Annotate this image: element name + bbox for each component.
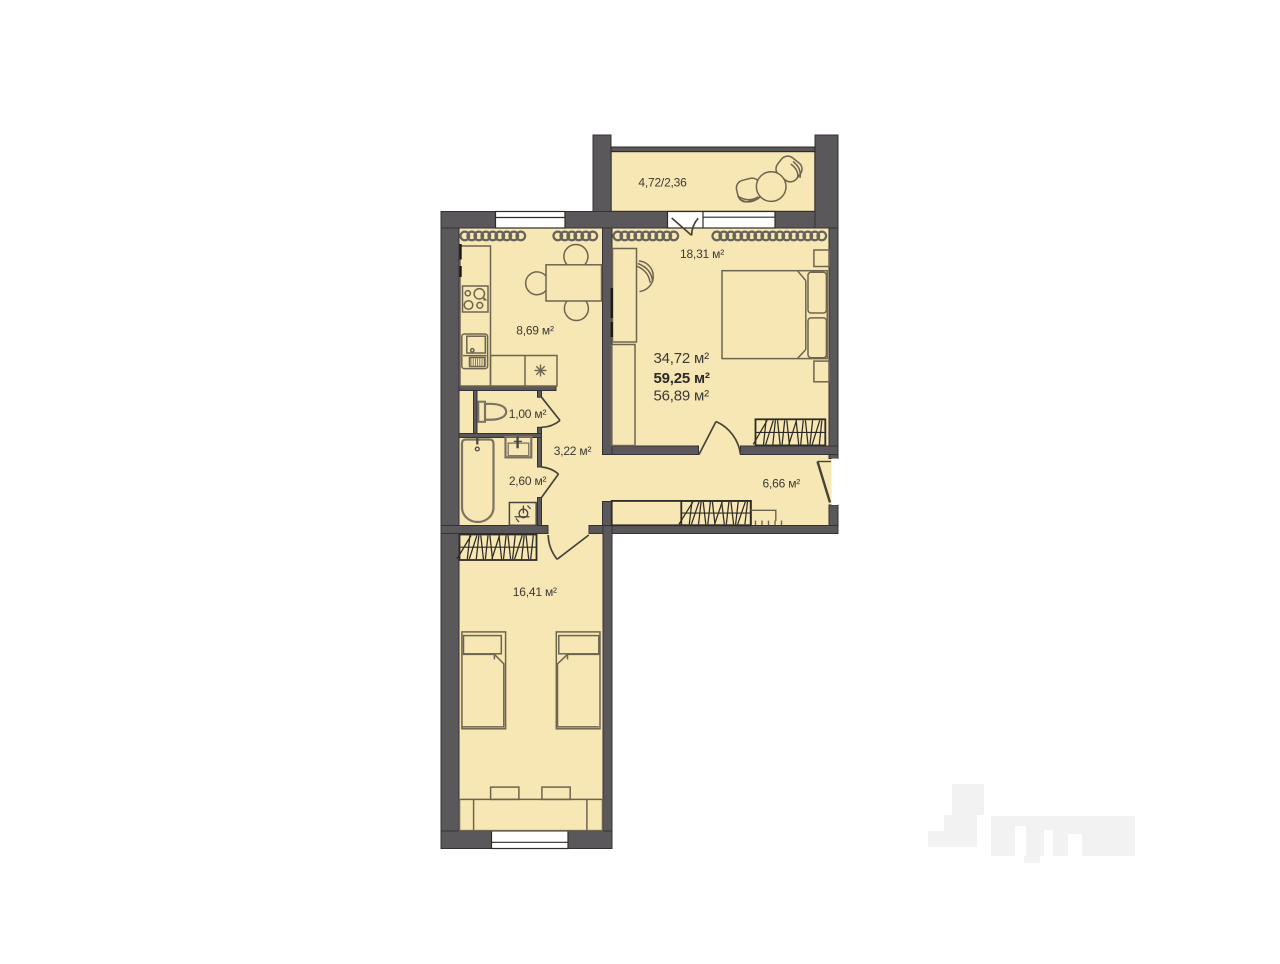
svg-text:56,89 м²: 56,89 м² [654,387,710,404]
svg-text:18,31 м²: 18,31 м² [680,247,724,261]
svg-text:8,69 м²: 8,69 м² [516,324,554,338]
svg-text:3,22 м²: 3,22 м² [554,444,592,458]
svg-text:34,72 м²: 34,72 м² [654,350,710,367]
svg-text:6,66 м²: 6,66 м² [763,476,801,490]
svg-text:4,72/2,36: 4,72/2,36 [638,176,687,190]
svg-text:1,00 м²: 1,00 м² [509,407,547,421]
svg-text:2,60 м²: 2,60 м² [509,474,547,488]
svg-text:59,25 м²: 59,25 м² [654,370,710,387]
svg-text:16,41 м²: 16,41 м² [513,585,557,599]
